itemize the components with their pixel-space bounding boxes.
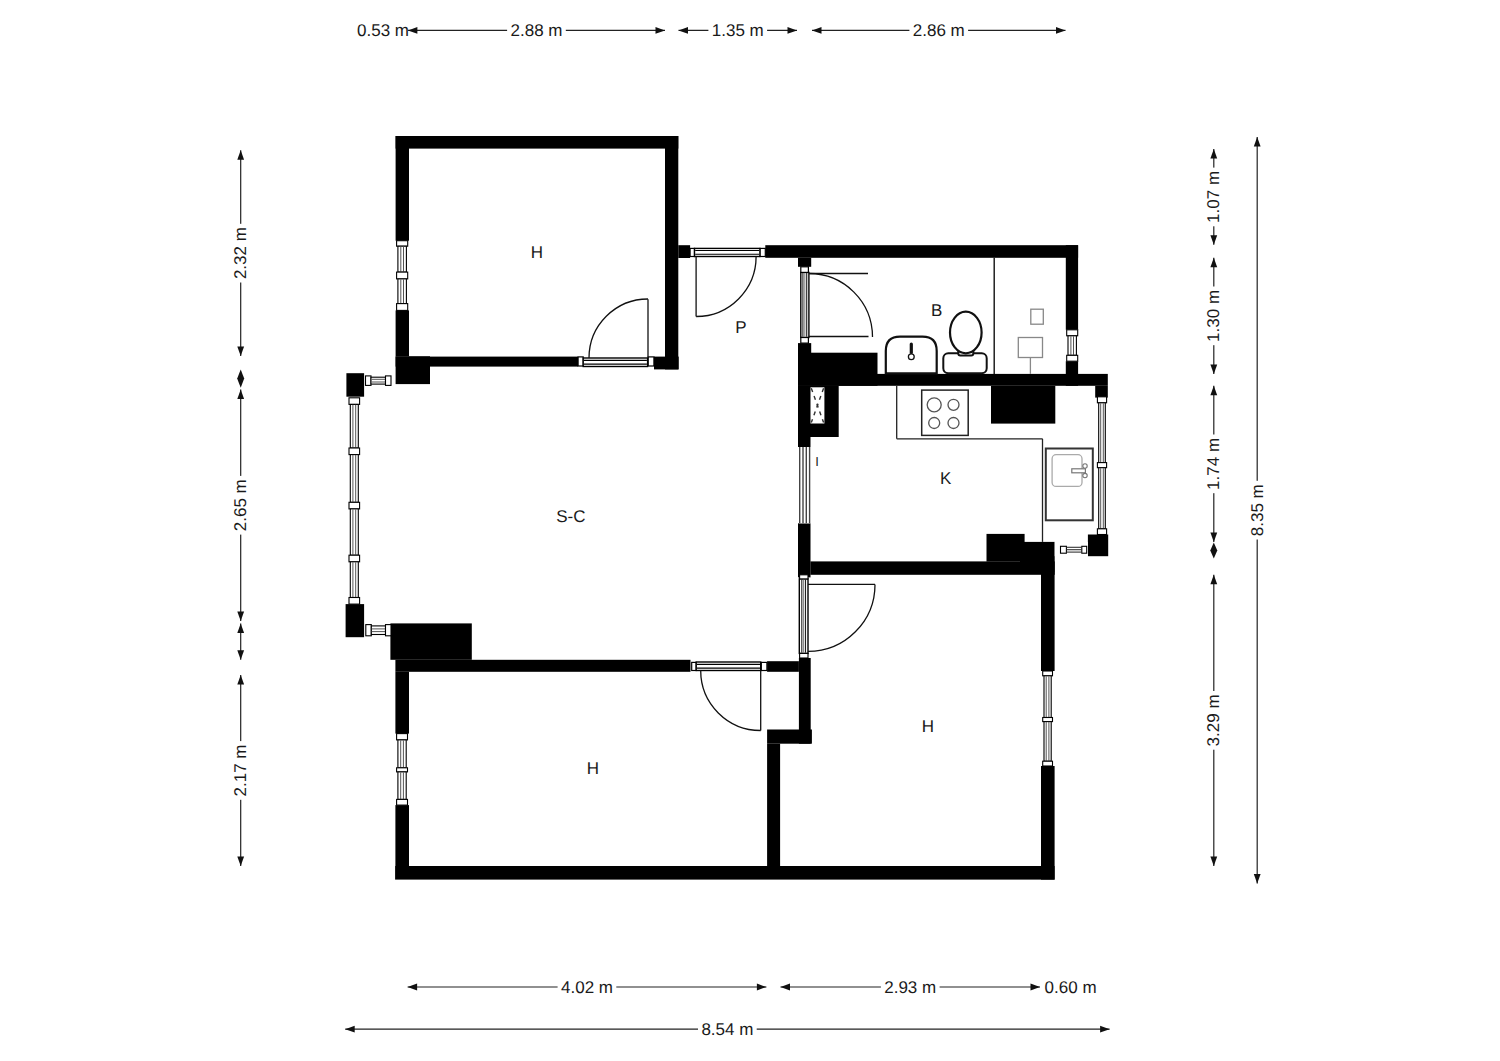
svg-text:1.07 m: 1.07 m [1204, 171, 1223, 223]
svg-text:H: H [922, 717, 934, 736]
svg-text:2.17 m: 2.17 m [231, 745, 250, 797]
svg-text:K: K [940, 469, 952, 488]
svg-text:0.60 m: 0.60 m [1045, 978, 1097, 997]
svg-text:2.88 m: 2.88 m [511, 21, 563, 40]
svg-text:2.32 m: 2.32 m [231, 227, 250, 279]
svg-text:I: I [815, 454, 819, 469]
svg-text:H: H [587, 759, 599, 778]
svg-text:8.54 m: 8.54 m [701, 1020, 753, 1039]
svg-text:S-C: S-C [556, 507, 585, 526]
svg-text:1.74 m: 1.74 m [1204, 438, 1223, 490]
svg-text:P: P [735, 318, 746, 337]
svg-text:0.53 m: 0.53 m [357, 21, 409, 40]
svg-text:2.65 m: 2.65 m [231, 479, 250, 531]
svg-text:1.35 m: 1.35 m [712, 21, 764, 40]
svg-text:2.93 m: 2.93 m [884, 978, 936, 997]
svg-text:8.35 m: 8.35 m [1248, 484, 1267, 536]
svg-text:4.02 m: 4.02 m [561, 978, 613, 997]
svg-text:B: B [931, 301, 942, 320]
svg-text:2.86 m: 2.86 m [913, 21, 965, 40]
svg-text:1.30 m: 1.30 m [1204, 290, 1223, 342]
svg-text:H: H [531, 243, 543, 262]
svg-text:3.29 m: 3.29 m [1204, 694, 1223, 746]
